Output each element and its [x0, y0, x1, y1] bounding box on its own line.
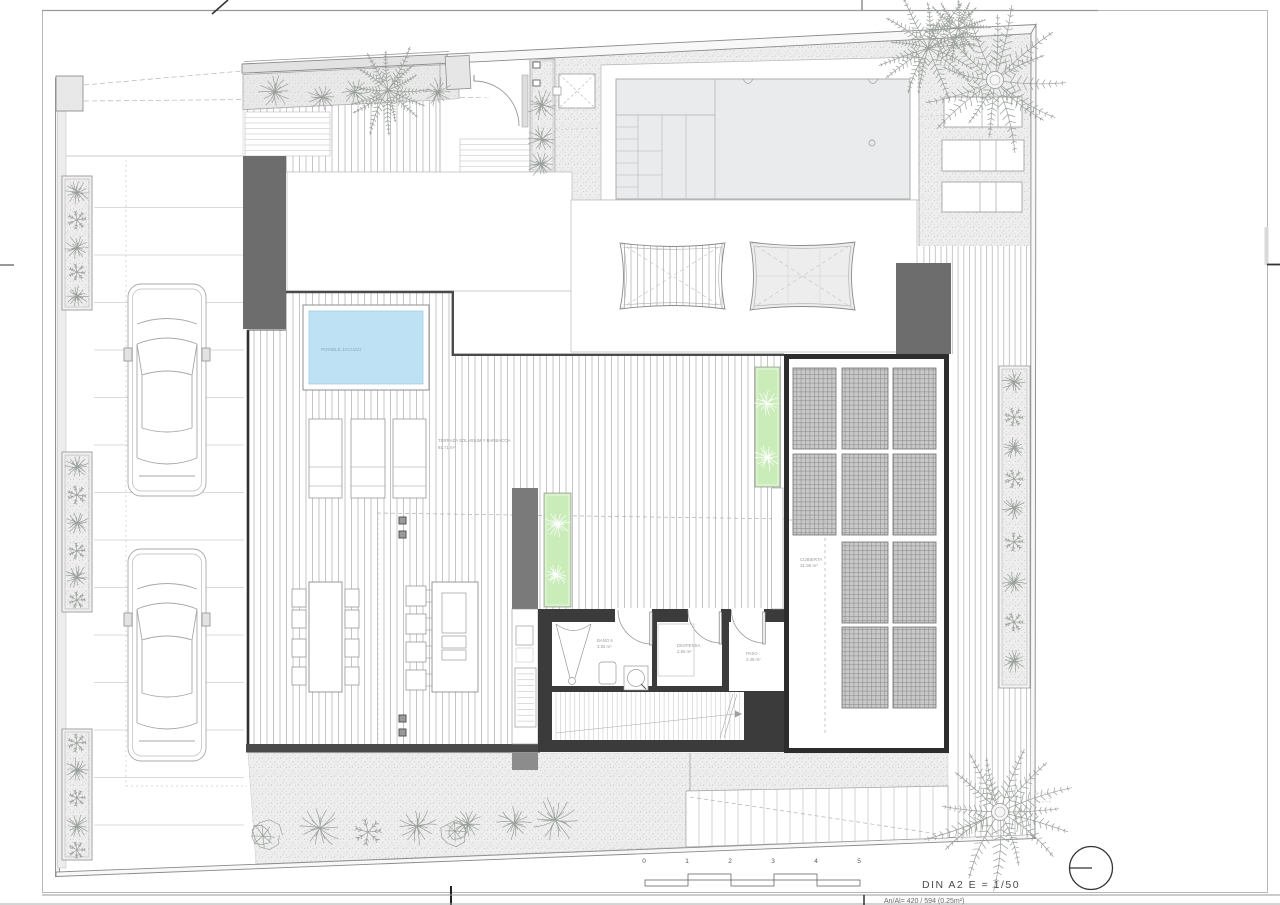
svg-text:1: 1	[685, 858, 689, 865]
svg-text:2.56 m²: 2.56 m²	[677, 649, 692, 654]
svg-text:4: 4	[814, 858, 818, 865]
svg-text:91.71 m²: 91.71 m²	[438, 445, 456, 450]
svg-text:PASO: PASO	[746, 651, 758, 656]
svg-text:2: 2	[728, 858, 732, 865]
svg-text:5: 5	[857, 858, 861, 865]
svg-text:DIN A2 E = 1/50: DIN A2 E = 1/50	[922, 879, 1020, 891]
svg-text:BAÑO 6: BAÑO 6	[597, 638, 613, 643]
svg-text:0: 0	[642, 858, 646, 865]
svg-text:3: 3	[771, 858, 775, 865]
svg-text:3.38 m²: 3.38 m²	[746, 657, 761, 662]
svg-text:An/Al= 420 / 594 (0.25m²): An/Al= 420 / 594 (0.25m²)	[884, 898, 964, 905]
svg-text:CUBIERTA: CUBIERTA	[800, 557, 822, 562]
svg-text:DESPENSA: DESPENSA	[677, 643, 701, 648]
svg-text:31.96 m²: 31.96 m²	[800, 563, 818, 568]
svg-text:3.82 m²: 3.82 m²	[597, 644, 612, 649]
svg-text:TERRAZA SOLARIUM Y BARBACOA: TERRAZA SOLARIUM Y BARBACOA	[438, 438, 511, 443]
svg-text:POSIBLE JACUZZI: POSIBLE JACUZZI	[321, 347, 361, 352]
